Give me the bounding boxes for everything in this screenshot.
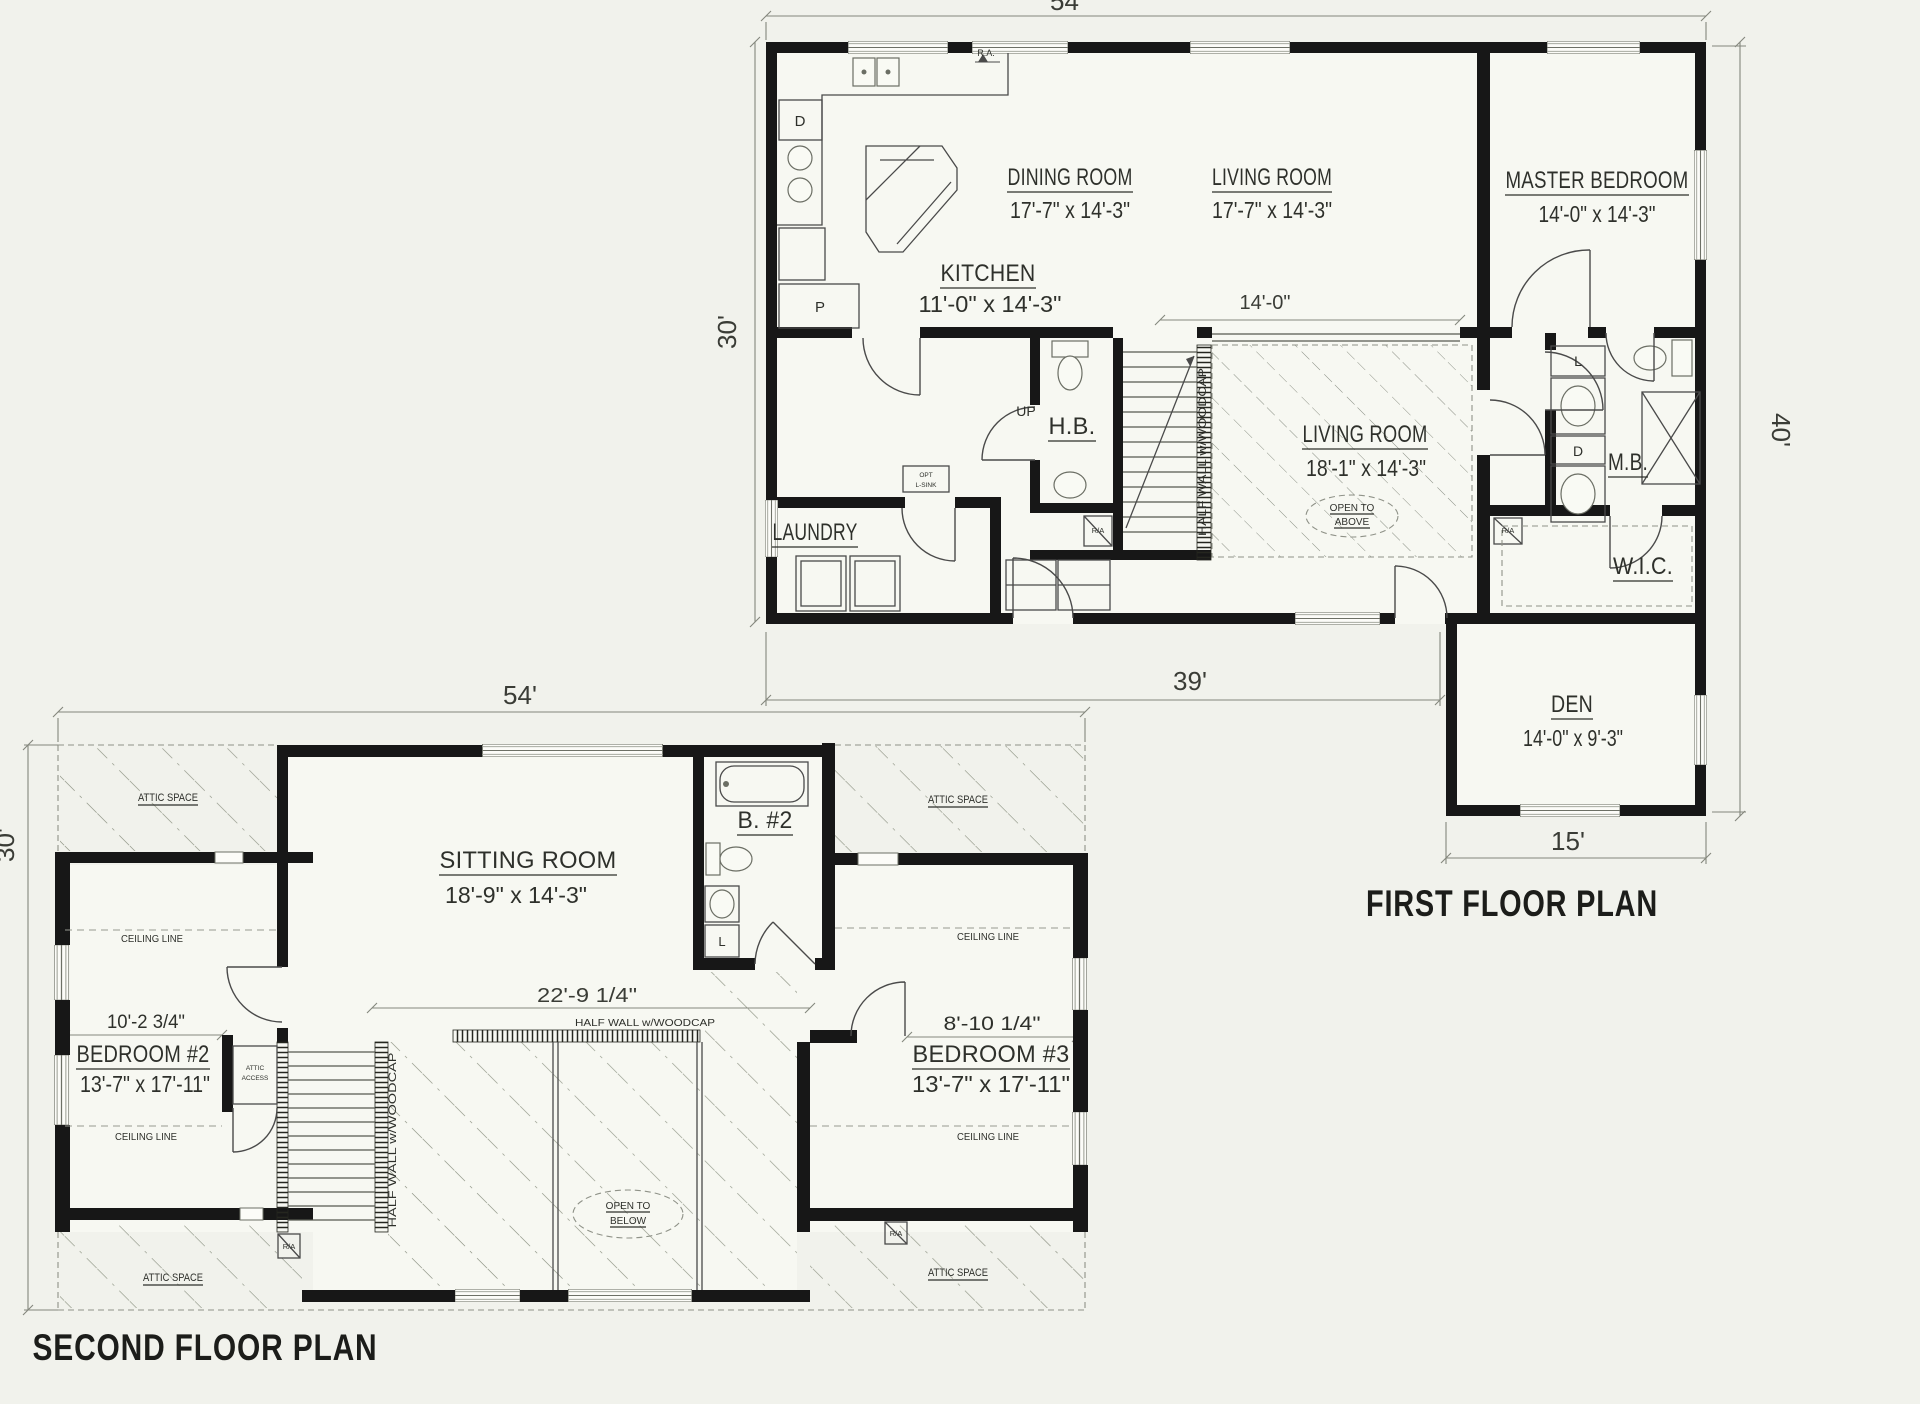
ceiling-line-label: CEILING LINE bbox=[121, 934, 183, 945]
half-bath-label: H.B. bbox=[1049, 413, 1096, 440]
window bbox=[1547, 41, 1640, 54]
window bbox=[1295, 612, 1380, 625]
opt-sink-line1: OPT bbox=[919, 472, 932, 479]
living-room-lower-size: 18'-1" x 14'-3" bbox=[1306, 455, 1426, 481]
knee-wall-access bbox=[858, 853, 898, 865]
attic-access-line1: ATTIC bbox=[246, 1065, 265, 1072]
window bbox=[455, 1289, 520, 1302]
window bbox=[482, 744, 663, 757]
tub-faucet bbox=[723, 781, 729, 787]
drawers-label: D bbox=[1573, 443, 1583, 459]
return-air-label: R/A bbox=[283, 1242, 296, 1251]
dim-bedroom3-ceiling: 8'-10 1/4" bbox=[944, 1014, 1041, 1035]
toilet-bowl bbox=[1634, 346, 1666, 370]
sink bbox=[710, 890, 734, 918]
open-to-above-line1: OPEN TO bbox=[1330, 503, 1375, 514]
range-air-label: R.A. bbox=[977, 48, 995, 58]
open-to-above-line2: ABOVE bbox=[1335, 517, 1370, 528]
window bbox=[848, 41, 948, 54]
attic-space-label: ATTIC SPACE bbox=[928, 794, 988, 806]
ceiling-line-label: CEILING LINE bbox=[957, 932, 1019, 943]
master-bath-label: M.B. bbox=[1608, 449, 1648, 476]
pantry-label: P bbox=[815, 299, 825, 316]
return-air-label: R/A bbox=[1092, 526, 1105, 535]
window bbox=[1694, 695, 1707, 765]
knee-wall-access bbox=[215, 852, 243, 863]
toilet-tank bbox=[706, 843, 720, 875]
sink bbox=[1561, 386, 1595, 426]
dishwasher-label: D bbox=[795, 113, 806, 130]
dim-main-depth: 30' bbox=[712, 315, 742, 349]
return-air-label: R/A bbox=[890, 1229, 903, 1238]
half-wall-note-horizontal: HALF WALL w/WOODCAP bbox=[575, 1018, 715, 1029]
dim-bottom-width: 39' bbox=[1173, 666, 1207, 696]
second-floor-title: SECOND FLOOR PLAN bbox=[33, 1327, 378, 1368]
toilet-bowl bbox=[720, 847, 752, 871]
sitting-room-size: 18'-9" x 14'-3" bbox=[445, 882, 587, 908]
stairs-up-label: UP bbox=[1016, 403, 1035, 419]
living-room-upper-size: 17'-7" x 14'-3" bbox=[1212, 197, 1332, 223]
dim-opening: 14'-0" bbox=[1240, 292, 1291, 314]
attic-space-bottomright bbox=[810, 1222, 1085, 1308]
bath2-label: B. #2 bbox=[738, 807, 793, 834]
dim-main-depth: 30' bbox=[0, 828, 20, 862]
opt-sink-line2: L-SINK bbox=[916, 482, 938, 489]
attic-space-label: ATTIC SPACE bbox=[143, 1272, 203, 1284]
window bbox=[1190, 41, 1290, 54]
attic-space-label: ATTIC SPACE bbox=[928, 1267, 988, 1279]
bedroom2-size: 13'-7" x 17'-11" bbox=[80, 1071, 210, 1097]
dim-right-depth: 40' bbox=[1766, 413, 1796, 447]
window bbox=[568, 1289, 692, 1302]
window bbox=[1072, 958, 1087, 1010]
return-air-label: R/A bbox=[1502, 526, 1515, 535]
ceiling-line-label: CEILING LINE bbox=[957, 1132, 1019, 1143]
toilet-tank bbox=[1672, 340, 1692, 376]
toilet-bowl bbox=[1058, 356, 1082, 390]
dining-room-label: DINING ROOM bbox=[1008, 164, 1133, 191]
window bbox=[1694, 150, 1707, 260]
den-size: 14'-0" x 9'-3" bbox=[1523, 725, 1623, 751]
wic-label: W.I.C. bbox=[1613, 553, 1673, 580]
linen-label: L bbox=[1574, 353, 1582, 369]
dim-overall-width: 54' bbox=[1050, 0, 1084, 16]
scanned-floor-plan-page: 54' 30' 40' 39' 15' 14'-0" DINING ROOM 1… bbox=[0, 0, 1920, 1404]
attic-space-label: ATTIC SPACE bbox=[138, 792, 198, 804]
master-bedroom-size: 14'-0" x 14'-3" bbox=[1539, 201, 1656, 227]
attic-space-bottomleft bbox=[60, 1221, 302, 1308]
window bbox=[1072, 1112, 1087, 1165]
half-wall-note: HALF WALL w/WOODCAP bbox=[1197, 368, 1209, 536]
first-floor-title: FIRST FLOOR PLAN bbox=[1366, 883, 1658, 924]
sitting-room-label: SITTING ROOM bbox=[440, 847, 617, 874]
living-room-upper-label: LIVING ROOM bbox=[1212, 164, 1332, 191]
master-bedroom-label: MASTER BEDROOM bbox=[1506, 167, 1689, 194]
dining-room-size: 17'-7" x 14'-3" bbox=[1010, 197, 1130, 223]
bedroom3-label: BEDROOM #3 bbox=[913, 1041, 1070, 1068]
window bbox=[54, 945, 69, 1000]
half-wall-note-vertical: HALF WALL w/WOODCAP bbox=[387, 1053, 399, 1228]
kitchen-size: 11'-0" x 14'-3" bbox=[919, 291, 1062, 317]
sink bbox=[1054, 472, 1086, 498]
bedroom2-label: BEDROOM #2 bbox=[77, 1041, 210, 1068]
sink bbox=[1561, 474, 1595, 514]
linen-label: L bbox=[718, 934, 725, 949]
bedroom3-size: 13'-7" x 17'-11" bbox=[912, 1071, 1070, 1097]
knee-wall-access bbox=[240, 1208, 263, 1220]
dim-overall-width: 54' bbox=[503, 680, 537, 710]
window bbox=[1520, 804, 1620, 817]
dim-stair-opening: 22'-9 1/4" bbox=[537, 985, 637, 1007]
living-room-lower-label: LIVING ROOM bbox=[1303, 421, 1428, 448]
toilet-tank bbox=[1052, 341, 1088, 357]
open-to-below-line2: BELOW bbox=[610, 1216, 647, 1227]
laundry-label: LAUNDRY bbox=[773, 519, 858, 546]
dim-bedroom2-ceiling: 10'-2 3/4" bbox=[107, 1012, 185, 1033]
den-label: DEN bbox=[1551, 691, 1593, 718]
second-floor-plan: 54' 30' 22'-9 1/4" 10'-2 3/4" 8'-10 1/4"… bbox=[0, 680, 1090, 1368]
kitchen-label: KITCHEN bbox=[941, 260, 1036, 287]
dim-den-width: 15' bbox=[1551, 826, 1585, 856]
floor-plan-drawing: 54' 30' 40' 39' 15' 14'-0" DINING ROOM 1… bbox=[0, 0, 1920, 1404]
ceiling-line-label: CEILING LINE bbox=[115, 1132, 177, 1143]
range-burner bbox=[788, 146, 812, 170]
attic-access-line2: ACCESS bbox=[242, 1075, 269, 1082]
range-burner bbox=[788, 178, 812, 202]
window bbox=[54, 1055, 69, 1125]
open-to-below-line1: OPEN TO bbox=[606, 1201, 651, 1212]
